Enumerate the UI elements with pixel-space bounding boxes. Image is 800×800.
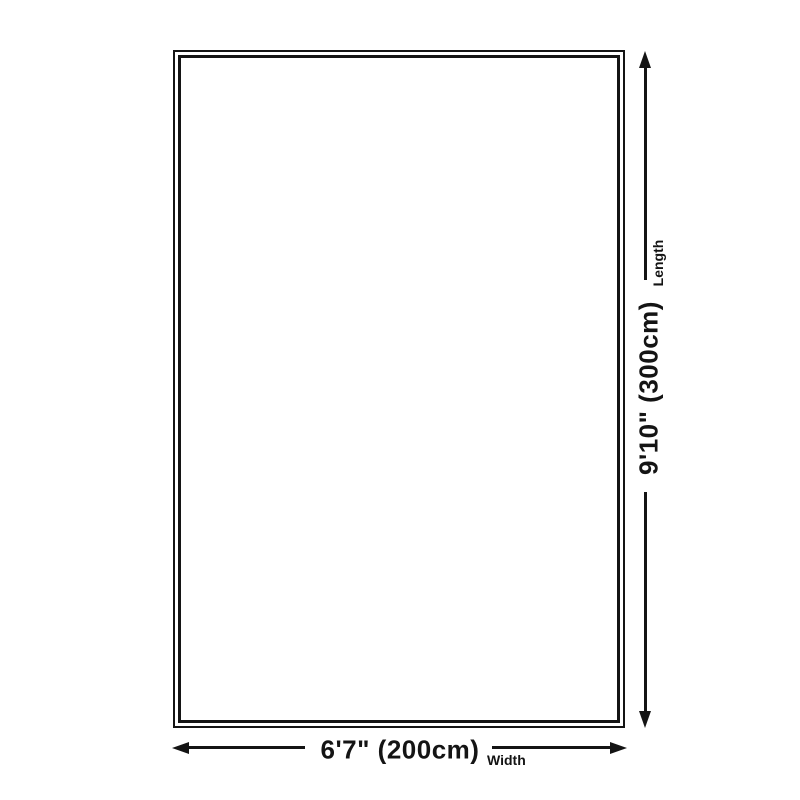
width-dimension-label: 6'7" (200cm) (321, 735, 480, 766)
width-arrow-line-left (187, 746, 305, 749)
length-arrow-line-top (644, 64, 647, 280)
rug-size-diagram: 9'10" (300cm) Length 6'7" (200cm) Width (0, 0, 800, 800)
rug-outline-inner (178, 55, 620, 723)
length-axis-label: Length (650, 240, 666, 287)
length-arrow-line-bottom (644, 492, 647, 714)
width-axis-label: Width (487, 752, 526, 768)
length-arrow-down-icon (639, 711, 651, 728)
width-arrow-line-right (492, 746, 613, 749)
width-arrow-right-icon (610, 742, 627, 754)
length-dimension-label: 9'10" (300cm) (634, 301, 665, 475)
rug-outline (173, 50, 625, 728)
